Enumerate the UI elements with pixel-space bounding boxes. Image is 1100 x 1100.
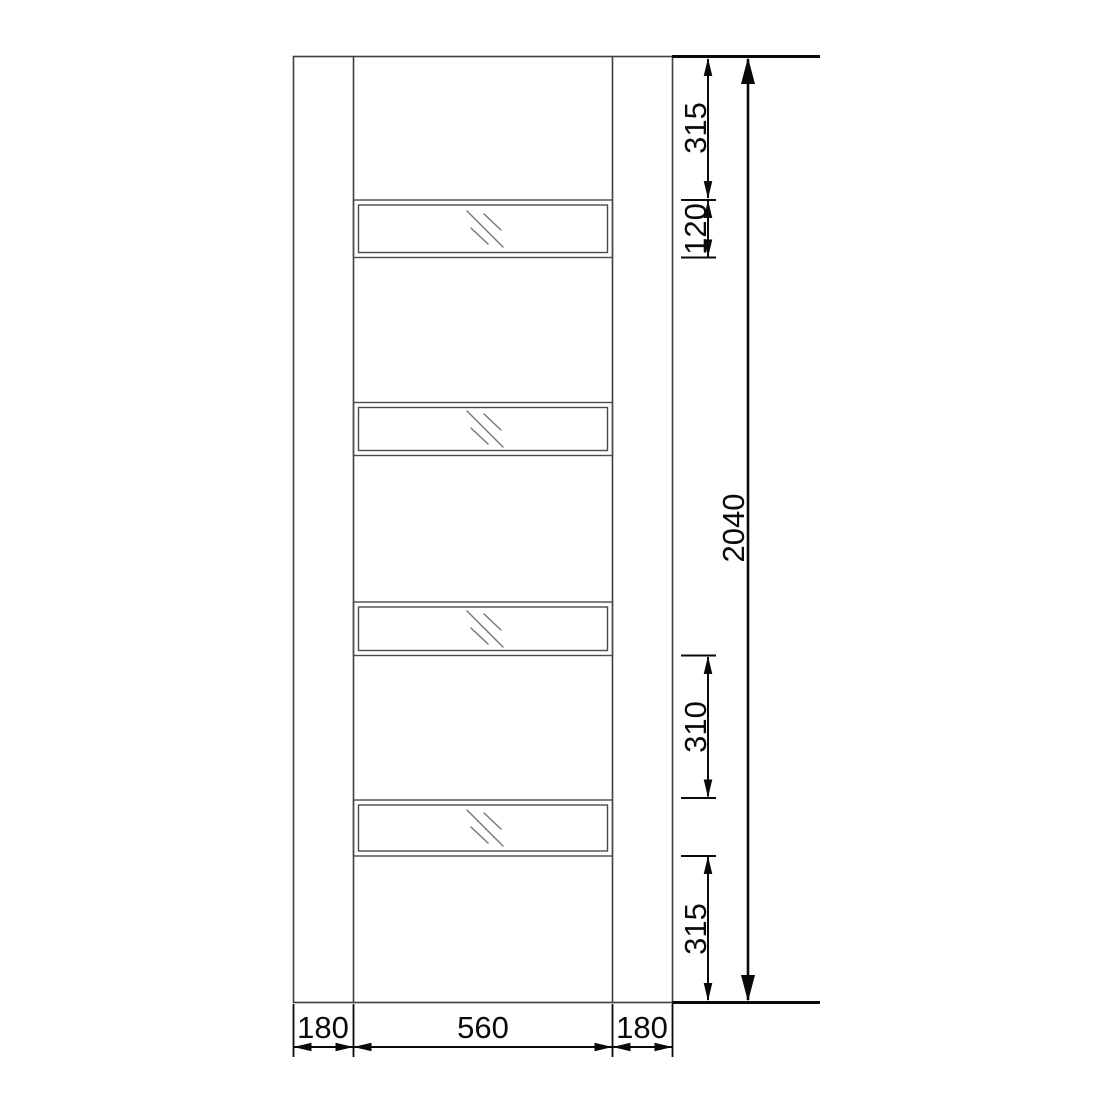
dimension-panel-height: 120	[678, 200, 713, 258]
arrow-up-icon	[704, 856, 713, 874]
arrow-up-icon	[704, 656, 713, 674]
dimension-label: 315	[678, 102, 713, 154]
dimension-top-offset: 315	[678, 58, 713, 199]
dimension-label: 2040	[716, 494, 751, 563]
door-leaf	[294, 57, 673, 1003]
dimension-label: 120	[678, 203, 713, 255]
dimension-glazing-width: 560	[354, 1010, 613, 1051]
right-dimension-group: 315 120 2040 310	[672, 57, 820, 1003]
drawing-canvas: 315 120 2040 310	[0, 0, 1100, 1100]
dimension-label: 180	[297, 1010, 349, 1045]
dimension-label: 560	[457, 1010, 509, 1045]
dimension-label: 180	[616, 1010, 668, 1045]
arrow-up-icon	[741, 58, 755, 85]
door-elevation-drawing: 315 120 2040 310	[0, 0, 1100, 1100]
dimension-label: 315	[678, 903, 713, 955]
arrow-left-icon	[354, 1043, 372, 1052]
arrow-right-icon	[595, 1043, 613, 1052]
arrow-down-icon	[704, 780, 713, 798]
dimension-right-stile: 180	[613, 1010, 673, 1051]
arrow-up-icon	[704, 58, 713, 76]
door-outline	[294, 57, 673, 1003]
dimension-label: 310	[678, 701, 713, 753]
bottom-dimension-group: 180 560 180	[294, 1004, 673, 1057]
arrow-down-icon	[704, 983, 713, 1001]
arrow-down-icon	[704, 181, 713, 199]
dimension-overall-height: 2040	[716, 58, 755, 1002]
arrow-down-icon	[741, 975, 755, 1002]
dimension-left-stile: 180	[294, 1010, 354, 1051]
dimension-bottom-offset: 315	[678, 856, 713, 1001]
dimension-panel-gap: 310	[678, 656, 713, 798]
